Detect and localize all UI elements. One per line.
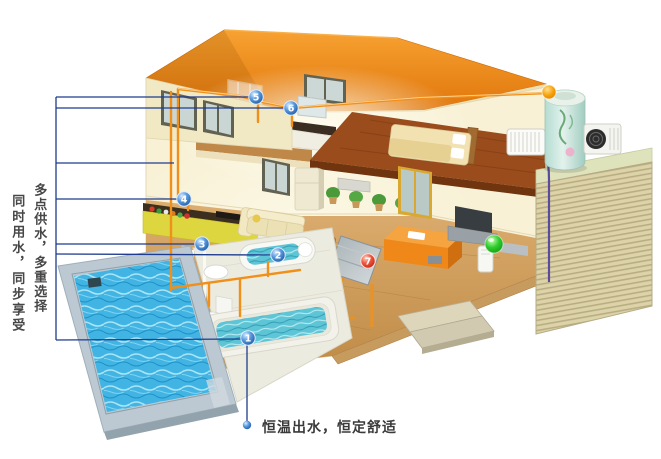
marker-6: 6 xyxy=(284,101,298,115)
promo-illustration: 1 2 3 4 5 6 7 多点供水，多重选择 同时用水，同步享受 恒温出水，恒 xyxy=(0,0,661,459)
right-terrace xyxy=(536,87,652,334)
fridge-body xyxy=(295,168,319,210)
caption-bottom: 恒温出水，恒定舒适 xyxy=(262,417,397,437)
orange-heat-indicator xyxy=(542,85,556,99)
lotus-art xyxy=(566,148,575,157)
bed-pillow xyxy=(452,134,466,146)
ground-window xyxy=(262,158,290,196)
marker-2-label: 2 xyxy=(275,251,282,262)
vegetable xyxy=(149,206,154,211)
vegetable xyxy=(164,210,169,215)
bottom-caption-dot xyxy=(243,421,251,429)
fridge xyxy=(295,168,324,210)
vegetable xyxy=(184,213,190,219)
heat-pump-unit xyxy=(584,124,621,154)
marker-4: 4 xyxy=(177,192,191,206)
marker-5-label: 5 xyxy=(253,93,260,104)
radiator xyxy=(507,129,545,155)
marker-4-label: 4 xyxy=(181,195,188,206)
marker-6-label: 6 xyxy=(288,104,295,115)
marker-7: 7 xyxy=(361,254,375,268)
marker-2: 2 xyxy=(271,248,285,262)
vegetable xyxy=(156,208,161,213)
device xyxy=(428,256,442,264)
bed-pillow xyxy=(450,147,464,159)
marker-3: 3 xyxy=(195,237,209,251)
patio-door xyxy=(398,166,432,219)
caption-left-secondary: 同时用水，同步享受 xyxy=(9,194,23,334)
green-status-indicator xyxy=(485,235,503,253)
marker-3-label: 3 xyxy=(199,240,206,251)
marker-1-label: 1 xyxy=(245,334,252,345)
marker-5: 5 xyxy=(249,90,263,104)
caption-left-primary: 多点供水，多重选择 xyxy=(31,183,45,314)
tank-cap xyxy=(554,92,576,100)
fridge-side xyxy=(319,168,324,210)
louver-shutter xyxy=(536,162,652,334)
vegetable xyxy=(177,212,182,217)
house-cutaway-scene: 1 2 3 4 5 6 7 xyxy=(0,0,661,459)
green-indicator-highlight xyxy=(488,238,494,242)
water-tank xyxy=(543,90,587,173)
marker-1: 1 xyxy=(241,331,255,345)
washbasin xyxy=(204,265,228,279)
marker-7-label: 7 xyxy=(365,257,372,268)
pool-drain xyxy=(88,277,102,288)
